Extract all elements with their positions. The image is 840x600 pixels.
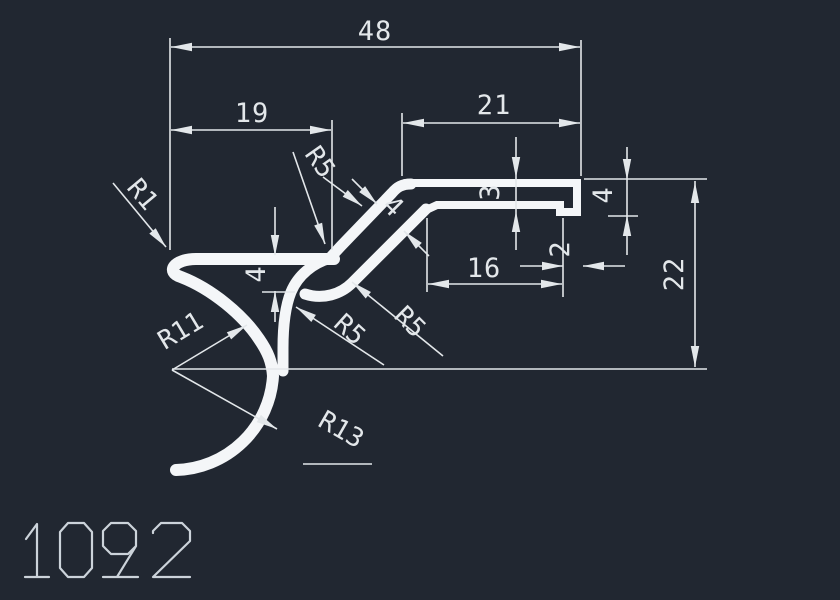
- dim-value-48: 48: [358, 16, 393, 47]
- dim-value-2: 2: [545, 240, 576, 257]
- dim-value-21: 21: [477, 90, 512, 121]
- cad-viewport[interactable]: 48 19 21 16 3 2 4 22 4 4 R1 R5 R5 R5 R11…: [0, 0, 840, 600]
- dim-value-3: 3: [475, 183, 506, 200]
- dim-value-4-flange: 4: [241, 265, 272, 282]
- dim-value-19: 19: [235, 98, 270, 129]
- cad-canvas[interactable]: 48 19 21 16 3 2 4 22 4 4 R1 R5 R5 R5 R11…: [0, 0, 840, 600]
- dim-value-4-right: 4: [588, 186, 619, 203]
- dim-value-16: 16: [467, 253, 502, 284]
- dim-value-22: 22: [659, 257, 690, 292]
- canvas-background: [0, 0, 840, 600]
